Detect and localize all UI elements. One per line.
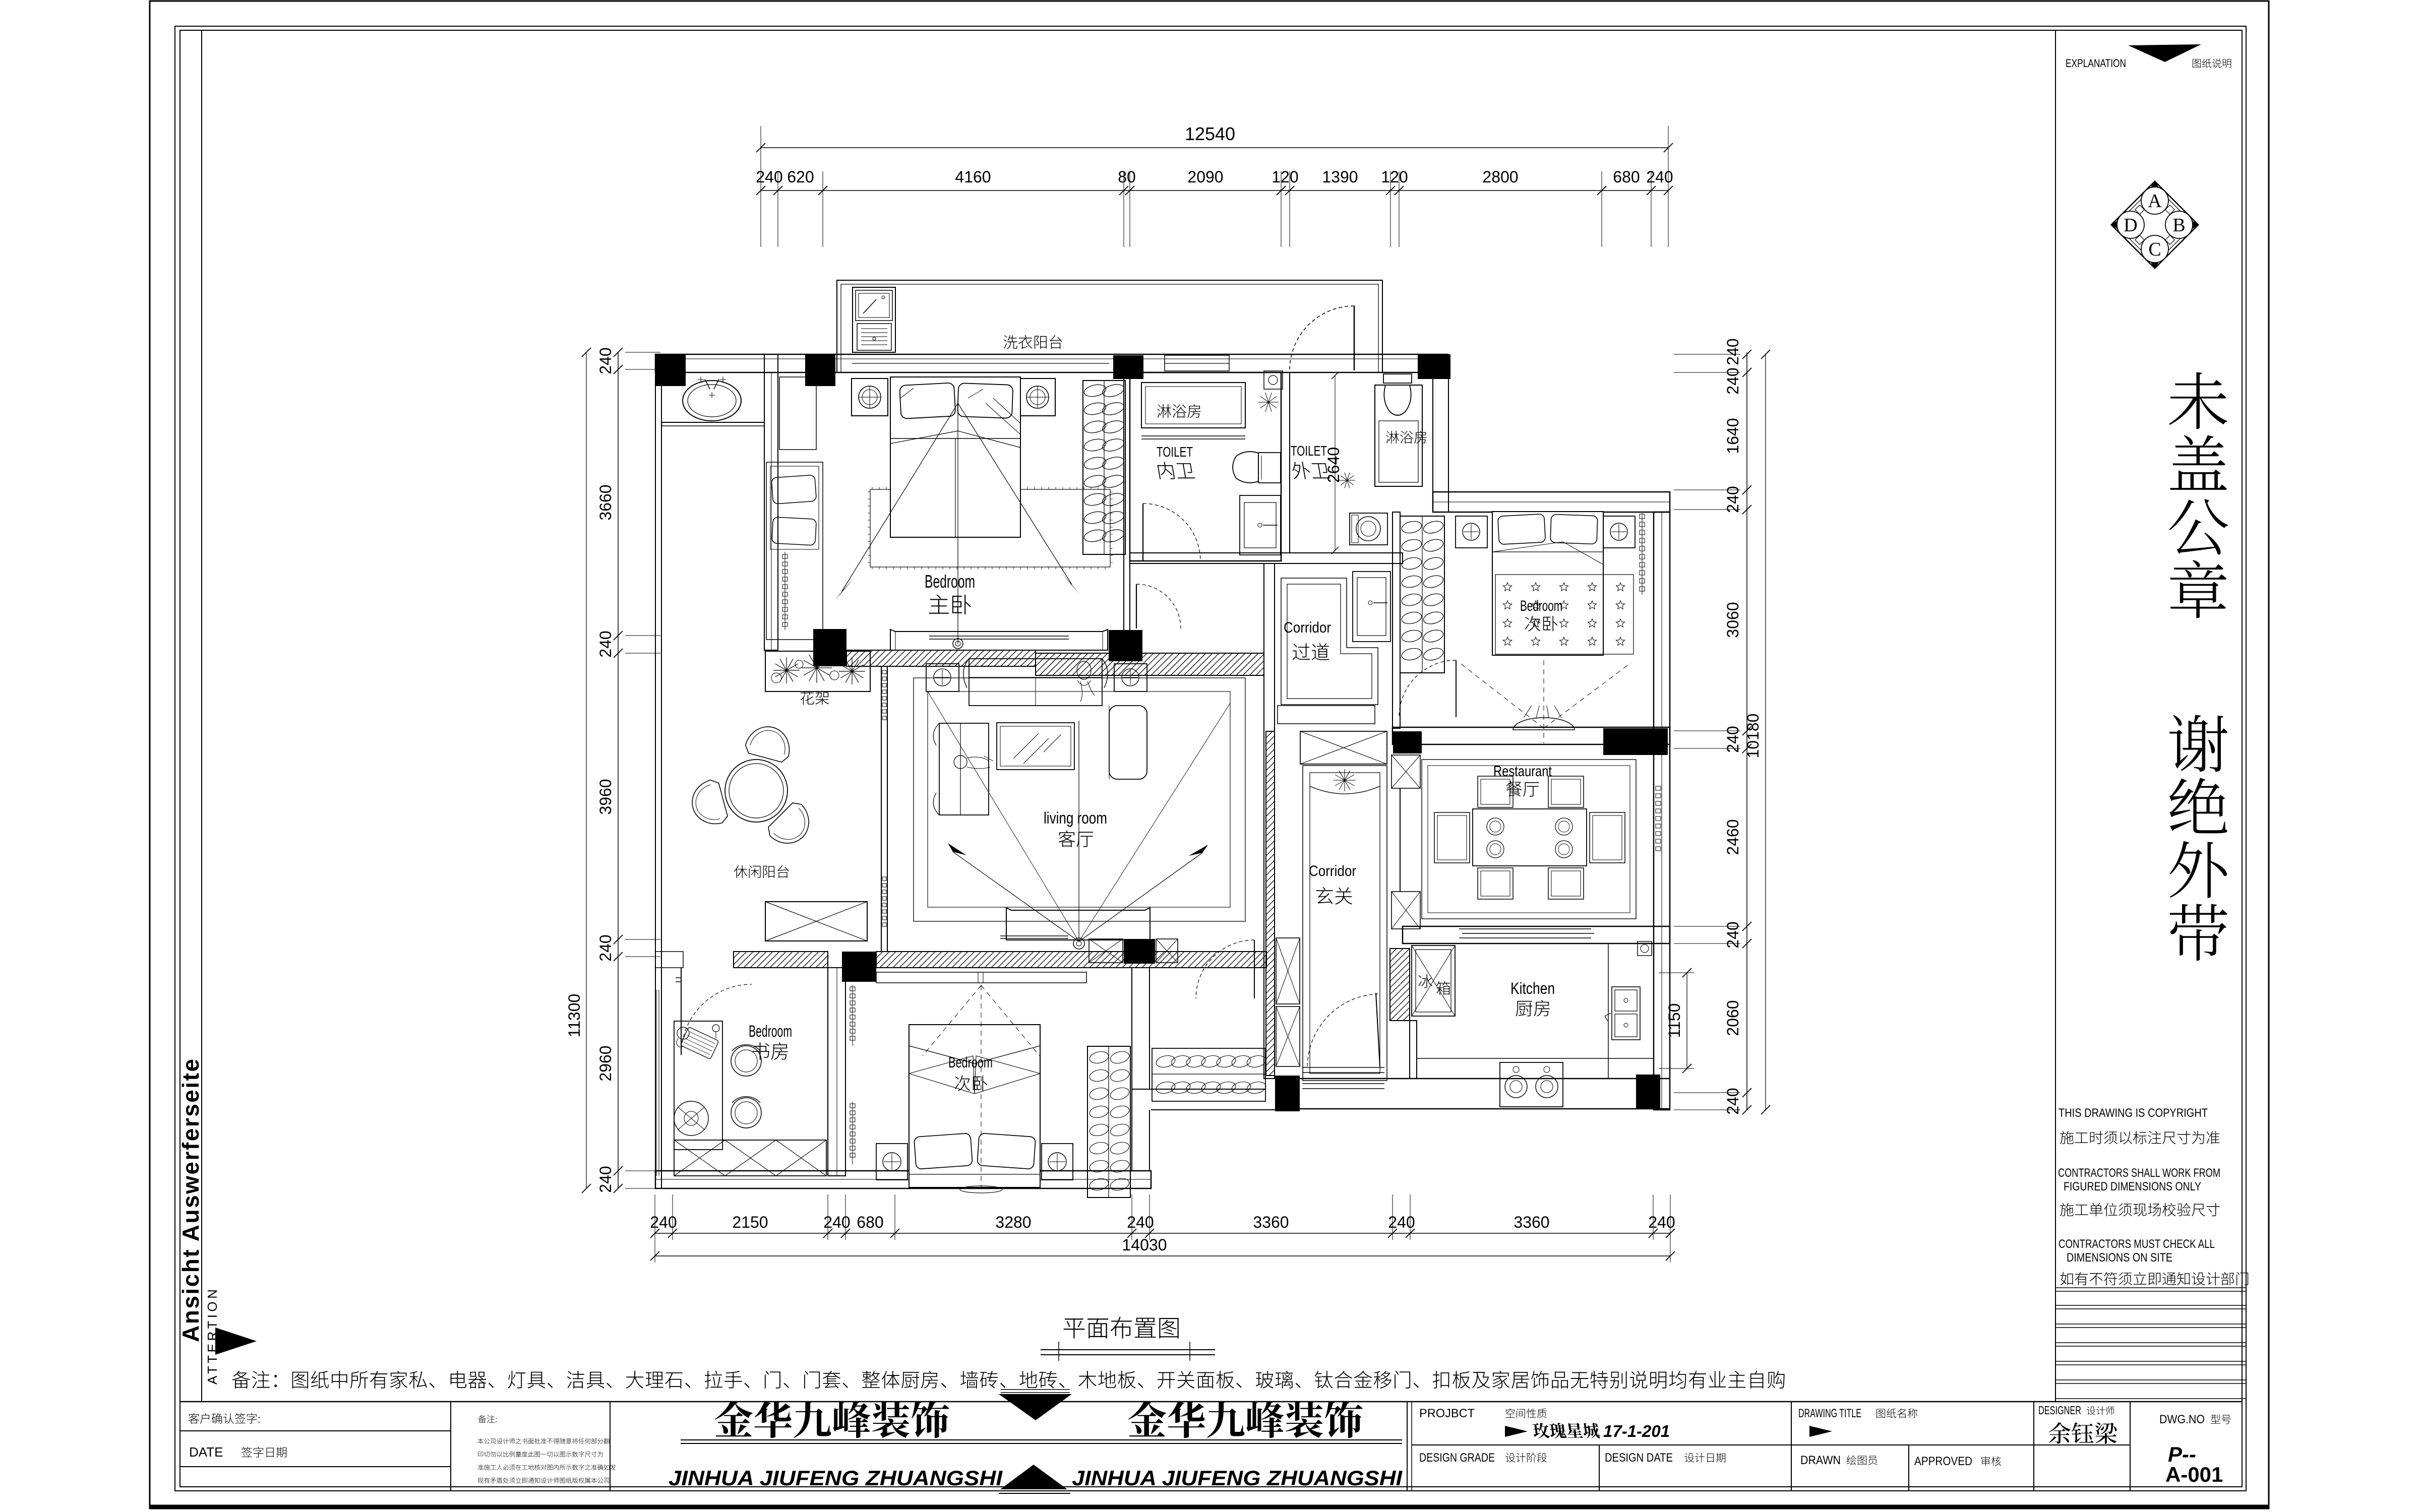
- svg-text:10180: 10180: [1744, 714, 1762, 759]
- svg-text:240: 240: [1648, 1213, 1675, 1231]
- svg-text:2460: 2460: [1724, 819, 1742, 855]
- svg-text:12540: 12540: [1185, 123, 1235, 144]
- svg-text:14030: 14030: [1122, 1236, 1167, 1254]
- svg-text:CONTRACTORS SHALL WORK FROM: CONTRACTORS SHALL WORK FROM: [2058, 1166, 2220, 1180]
- svg-text:Kitchen: Kitchen: [1510, 979, 1555, 997]
- svg-text:DESIGN GRADE: DESIGN GRADE: [1419, 1451, 1495, 1465]
- svg-text:240: 240: [596, 934, 615, 961]
- svg-text:THIS DRAWING IS COPYRIGHT: THIS DRAWING IS COPYRIGHT: [2059, 1106, 2208, 1120]
- svg-text:PROJBCT: PROJBCT: [1419, 1407, 1475, 1420]
- svg-text:11300: 11300: [565, 994, 583, 1038]
- svg-text:Bedroom: Bedroom: [925, 571, 975, 592]
- svg-text:3960: 3960: [596, 779, 615, 814]
- svg-text:Bedroom: Bedroom: [749, 1022, 792, 1040]
- svg-text:17-1-201: 17-1-201: [1603, 1422, 1670, 1440]
- svg-text:240: 240: [650, 1213, 677, 1231]
- svg-text:DESIGNER: DESIGNER: [2038, 1404, 2081, 1417]
- svg-text:Corridor: Corridor: [1309, 863, 1356, 879]
- svg-text:DESIGN DATE: DESIGN DATE: [1605, 1451, 1673, 1465]
- svg-text:240: 240: [1646, 168, 1673, 186]
- svg-text:240: 240: [1724, 338, 1742, 365]
- svg-text:4160: 4160: [955, 168, 991, 186]
- svg-text:1640: 1640: [1724, 418, 1742, 454]
- svg-text:JINHUA JIUFENG ZHUANGSHI: JINHUA JIUFENG ZHUANGSHI: [669, 1466, 1003, 1490]
- svg-text:A-001: A-001: [2165, 1463, 2223, 1486]
- svg-text:120: 120: [1381, 168, 1408, 186]
- svg-text:240: 240: [1724, 486, 1742, 513]
- svg-text:2640: 2640: [1324, 447, 1343, 483]
- svg-text:240: 240: [1127, 1213, 1154, 1231]
- svg-text:3060: 3060: [1724, 602, 1742, 638]
- svg-text:2060: 2060: [1724, 1000, 1742, 1036]
- svg-text:Restaurant: Restaurant: [1493, 763, 1552, 780]
- svg-text:DATE: DATE: [189, 1444, 223, 1460]
- svg-text:240: 240: [596, 631, 615, 657]
- svg-text:DRAWN: DRAWN: [1800, 1454, 1841, 1467]
- svg-text:TOILET: TOILET: [1157, 444, 1193, 460]
- svg-text:3280: 3280: [995, 1213, 1031, 1231]
- svg-text:2800: 2800: [1482, 168, 1518, 186]
- svg-text:240: 240: [1724, 367, 1742, 394]
- svg-text:240: 240: [1724, 726, 1742, 752]
- svg-text:240: 240: [756, 168, 782, 186]
- svg-text:240: 240: [596, 347, 615, 374]
- svg-text:240: 240: [1724, 921, 1742, 948]
- svg-text:Bedroom: Bedroom: [948, 1054, 993, 1071]
- svg-text:DIMENSIONS ON SITE: DIMENSIONS ON SITE: [2067, 1251, 2172, 1265]
- svg-text:Ansicht Auswerferseite: Ansicht Auswerferseite: [177, 1057, 204, 1342]
- svg-text:DWG.NO: DWG.NO: [2159, 1413, 2205, 1426]
- svg-text:APPROVED: APPROVED: [1914, 1455, 1972, 1468]
- svg-text:B: B: [2172, 215, 2185, 236]
- svg-text:240: 240: [1388, 1213, 1415, 1231]
- svg-text:CONTRACTORS MUST CHECK ALL: CONTRACTORS MUST CHECK ALL: [2059, 1237, 2215, 1251]
- svg-text:240: 240: [596, 1166, 615, 1192]
- svg-text:living room: living room: [1044, 809, 1107, 827]
- svg-text:3660: 3660: [596, 484, 615, 520]
- svg-text:FIGURED DIMENSIONS ONLY: FIGURED DIMENSIONS ONLY: [2064, 1180, 2201, 1193]
- svg-text:3360: 3360: [1514, 1213, 1549, 1231]
- svg-text:680: 680: [1613, 168, 1640, 186]
- svg-text:240: 240: [823, 1213, 850, 1231]
- svg-text:JINHUA JIUFENG ZHUANGSHI: JINHUA JIUFENG ZHUANGSHI: [1072, 1466, 1403, 1490]
- svg-text:C: C: [2148, 239, 2161, 260]
- svg-text:2960: 2960: [596, 1045, 615, 1081]
- svg-text:D: D: [2124, 215, 2137, 236]
- svg-text:EXPLANATION: EXPLANATION: [2066, 57, 2126, 70]
- svg-text:Corridor: Corridor: [1284, 619, 1331, 636]
- svg-text:620: 620: [787, 168, 814, 186]
- svg-text:A: A: [2148, 191, 2162, 212]
- svg-text:DRAWING TITLE: DRAWING TITLE: [1798, 1407, 1861, 1420]
- svg-text:80: 80: [1118, 168, 1136, 186]
- svg-text:3360: 3360: [1253, 1213, 1289, 1231]
- svg-text:2150: 2150: [732, 1213, 768, 1231]
- svg-text:Bedroom: Bedroom: [1520, 598, 1562, 614]
- svg-text:240: 240: [1724, 1088, 1742, 1114]
- svg-text:120: 120: [1272, 168, 1298, 186]
- svg-text:2090: 2090: [1187, 168, 1223, 186]
- svg-text:680: 680: [857, 1213, 883, 1231]
- svg-text:1390: 1390: [1322, 168, 1358, 186]
- svg-text:1150: 1150: [1665, 1003, 1683, 1038]
- svg-text:TOILET: TOILET: [1291, 443, 1327, 459]
